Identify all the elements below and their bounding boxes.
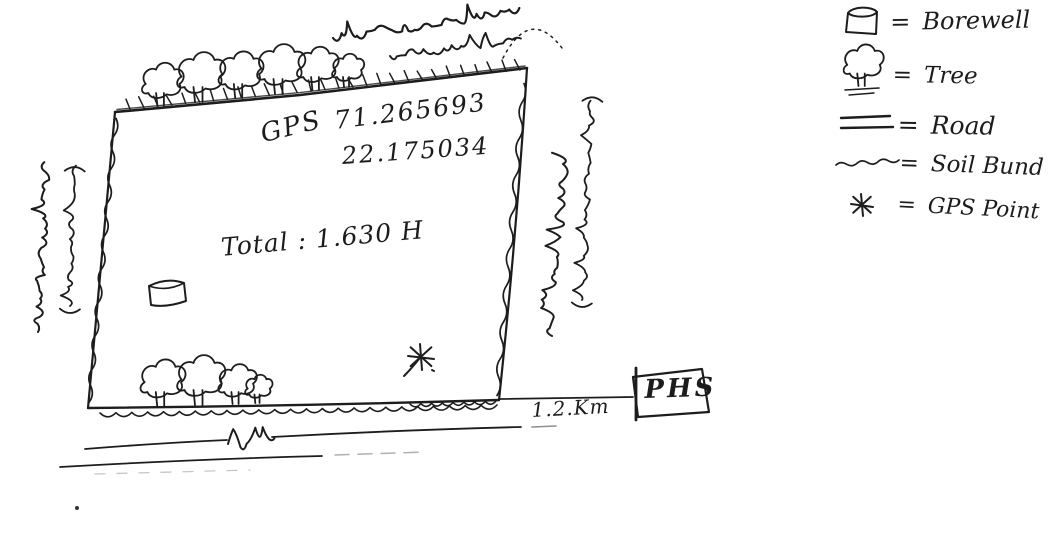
gujarati-label-left-name [60,165,85,313]
distance-label: 1.2.Km [531,396,610,420]
gujarati-label-top [331,0,520,42]
tree-icon [844,44,884,86]
gujarati-label-left [25,162,51,333]
legend-label-road: Road [930,111,995,141]
phs-label: PHS [644,374,717,402]
tree-icon [245,375,272,403]
right-soil-bund [497,83,526,395]
tree-icon [218,364,257,404]
legend-borewell-icon [846,8,877,34]
tree-icon [297,47,339,90]
equals-sign: = [893,62,913,88]
gps-point-icon [404,344,434,376]
village-road [60,426,556,474]
pen-dot [75,506,79,510]
gujarati-label-right-name [572,97,603,308]
legend-road-icon [841,116,893,128]
equals-sign: = [898,110,919,139]
legend-soil-bund-icon [836,159,899,166]
legend-tree-icon [844,44,884,95]
legend-row-tree: =Tree [893,64,978,88]
gujarati-label-top-faint [389,29,522,60]
legend-label-borewell: Borewell [922,6,1030,36]
legend-row-borewell: =Borewell [890,8,1030,34]
gujarati-label-right [539,153,569,337]
eraser-smudge [503,29,562,58]
legend-label-tree: Tree [924,63,978,90]
legend-gps-point-icon [851,194,873,216]
bottom-soil-bund [100,401,497,417]
borewell-icon [149,281,186,306]
equals-sign: = [899,150,919,177]
field-sketch-page: GPS 71.265693 22.175034 Total : 1.630 H … [0,0,1053,553]
gujarati-road-label [227,426,275,450]
equals-sign: = [897,192,917,218]
legend-row-road: =Road [898,112,996,139]
bottom-tree-row [141,355,273,406]
legend-label-soil-bund: Soil Bund [930,151,1044,181]
equals-sign: = [890,8,911,36]
